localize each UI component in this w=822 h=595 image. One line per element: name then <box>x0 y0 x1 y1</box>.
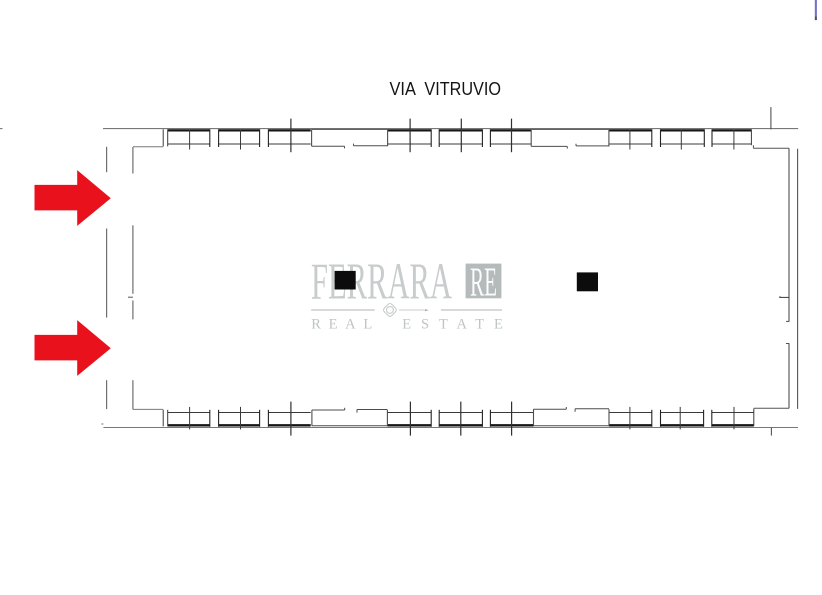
svg-text:RE: RE <box>470 258 497 304</box>
svg-text:VIA: VIA <box>390 78 417 99</box>
svg-text:FERRARA: FERRARA <box>311 254 452 311</box>
svg-text:REAL: REAL <box>311 317 381 333</box>
svg-text:VITRUVIO: VITRUVIO <box>424 78 501 99</box>
svg-text:ESTATE: ESTATE <box>402 317 510 333</box>
